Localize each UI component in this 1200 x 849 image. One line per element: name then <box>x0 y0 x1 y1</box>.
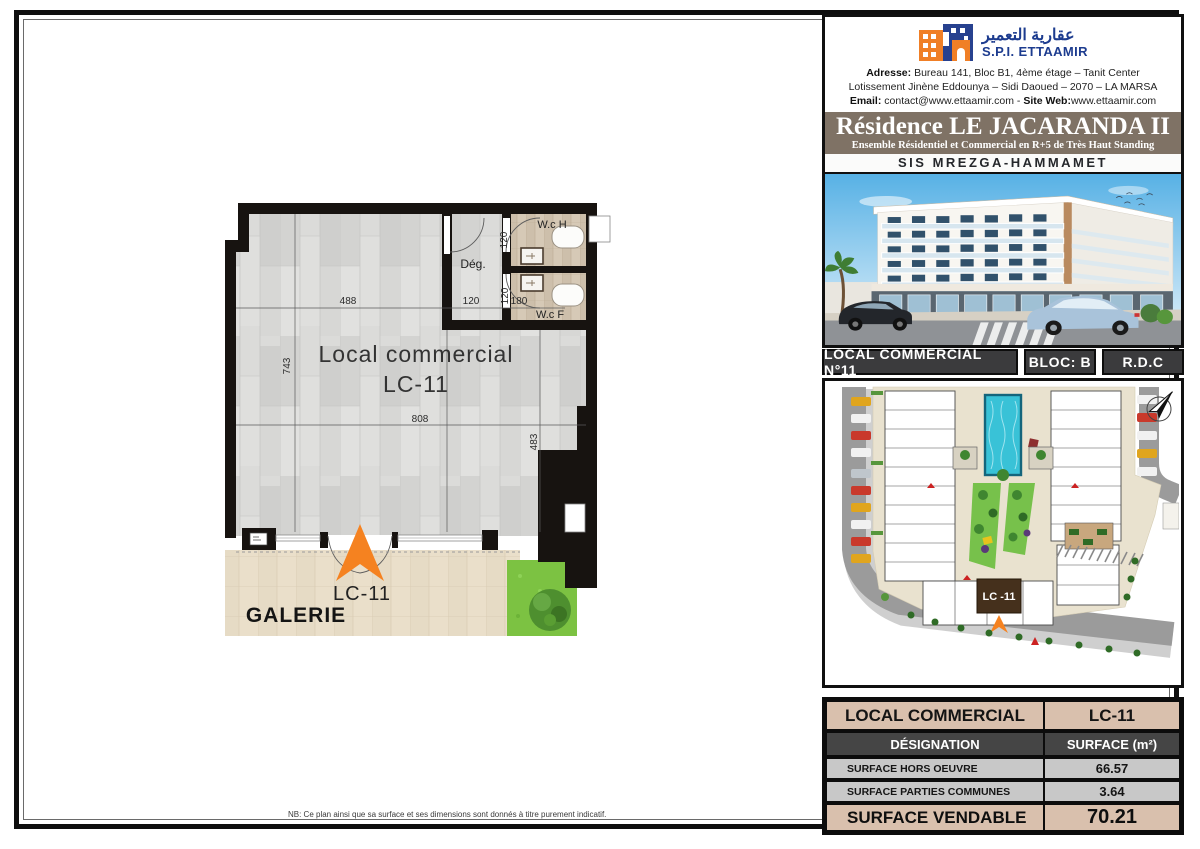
company-logo-icon <box>918 24 974 62</box>
site-plan-panel: LC -11 <box>822 378 1184 688</box>
wcf-label: W.c F <box>536 309 564 321</box>
table-row: SURFACE PARTIES COMMUNES 3.64 <box>827 782 1179 801</box>
deg-label: Dég. <box>460 257 485 271</box>
entrance-label: LC-11 <box>333 583 391 605</box>
separator: - <box>1014 95 1023 107</box>
row-label: SURFACE PARTIES COMMUNES <box>827 782 1043 801</box>
address-value: Bureau 141, Bloc B1, 4ème étage – Tanit … <box>914 67 1140 79</box>
dim-483: 483 <box>529 433 540 450</box>
address-label: Adresse: <box>866 67 911 79</box>
room-label-line2: LC-11 <box>383 371 449 397</box>
galerie-label: GALERIE <box>246 604 346 627</box>
surface-header: SURFACE (m²) <box>1045 733 1179 755</box>
site-plan-drawing: LC -11 <box>827 383 1179 683</box>
room-label-line1: Local commercial <box>319 341 514 367</box>
bloc-badge: BLOC: B <box>1024 349 1096 375</box>
floor-badge: R.D.C <box>1102 349 1184 375</box>
email-value: contact@www.ettaamir.com <box>884 95 1014 107</box>
utility-panel-icon <box>250 533 267 545</box>
row-label: SURFACE HORS OEUVRE <box>827 759 1043 778</box>
dim-120-deg: 120 <box>463 296 480 307</box>
dim-180: 180 <box>511 296 528 307</box>
row-value: 66.57 <box>1045 759 1179 778</box>
company-name-arabic: عقارية التعمير <box>982 28 1075 45</box>
dim-488: 488 <box>340 296 357 307</box>
sink-icon <box>521 248 543 264</box>
plan-sheet: 488 120 180 808 743 483 120 120 W.c H W.… <box>0 0 1200 849</box>
table-footer-row: SURFACE VENDABLE 70.21 <box>827 805 1179 830</box>
building-illustration <box>825 174 1181 345</box>
table-title-row: LOCAL COMMERCIAL LC-11 <box>827 702 1179 729</box>
dim-120-wch: 120 <box>499 231 510 248</box>
floor-plan: 488 120 180 808 743 483 120 120 W.c H W.… <box>220 196 612 644</box>
residence-banner: Résidence LE JACARANDA II Ensemble Résid… <box>825 112 1181 154</box>
terrace <box>1065 523 1113 549</box>
total-value: 70.21 <box>1045 805 1179 830</box>
residence-title: Résidence LE JACARANDA II <box>825 114 1181 140</box>
dim-120-wcf: 120 <box>500 287 511 304</box>
web-label: Site Web: <box>1023 95 1071 107</box>
table-row: SURFACE HORS OEUVRE 66.57 <box>827 759 1179 778</box>
building-mass <box>872 196 1173 317</box>
row-value: 3.64 <box>1045 782 1179 801</box>
floor-plan-drawing: 488 120 180 808 743 483 120 120 W.c H W.… <box>220 196 612 644</box>
designation-header: DÉSIGNATION <box>827 733 1043 755</box>
sink-icon <box>521 275 543 291</box>
wch-label: W.c H <box>537 219 566 231</box>
company-name: S.P.I. ETTAAMIR <box>982 45 1088 59</box>
unit-info-bar: LOCAL COMMERCIAL N°11 BLOC: B R.D.C <box>822 349 1184 375</box>
unit-number-badge: LOCAL COMMERCIAL N°11 <box>822 349 1018 375</box>
address-line2: Lotissement Jinène Eddounya – Sidi Daoue… <box>825 80 1181 94</box>
table-header-row: DÉSIGNATION SURFACE (m²) <box>827 733 1179 755</box>
company-address: Adresse: Bureau 141, Bloc B1, 4ème étage… <box>825 66 1181 109</box>
table-unit: LC-11 <box>1045 702 1179 729</box>
residence-location: SIS MREZGA-HAMMAMET <box>825 154 1181 172</box>
brand-row: عقارية التعمير S.P.I. ETTAAMIR <box>825 17 1181 66</box>
disclaimer-note: NB: Ce plan ainsi que sa surface et ses … <box>288 810 606 819</box>
total-label: SURFACE VENDABLE <box>827 805 1043 830</box>
residence-subtitle: Ensemble Résidentiel et Commercial en R+… <box>825 140 1181 151</box>
tree-icon <box>529 589 571 631</box>
header-panel: عقارية التعمير S.P.I. ETTAAMIR Adresse: … <box>822 14 1184 348</box>
building-render <box>825 172 1181 345</box>
dim-743: 743 <box>282 357 293 374</box>
web-value: www.ettaamir.com <box>1071 95 1156 107</box>
email-label: Email: <box>850 95 882 107</box>
surface-table: LOCAL COMMERCIAL LC-11 DÉSIGNATION SURFA… <box>822 697 1184 835</box>
lc11-site-label: LC -11 <box>982 591 1015 603</box>
dim-808: 808 <box>412 414 429 425</box>
table-title: LOCAL COMMERCIAL <box>827 702 1043 729</box>
